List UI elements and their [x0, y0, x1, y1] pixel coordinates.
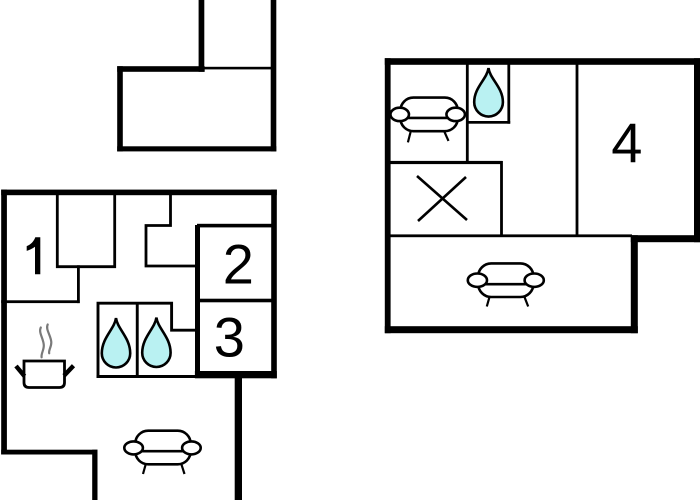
svg-text:4: 4: [611, 111, 642, 174]
svg-text:2: 2: [223, 233, 254, 296]
svg-text:3: 3: [214, 306, 245, 369]
